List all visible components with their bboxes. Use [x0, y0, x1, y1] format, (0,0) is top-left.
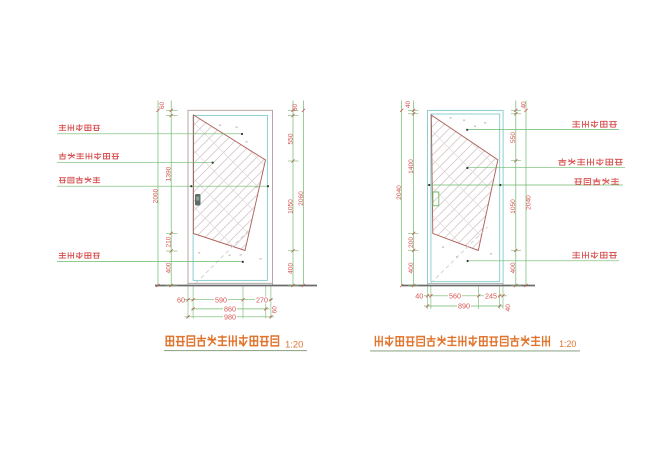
svg-text:890: 890 — [458, 302, 470, 311]
svg-text:200: 200 — [408, 237, 415, 248]
svg-text:560: 560 — [449, 291, 461, 300]
svg-text:60: 60 — [292, 104, 299, 112]
svg-text:1050: 1050 — [510, 199, 517, 214]
svg-text:1400: 1400 — [408, 159, 415, 174]
svg-text:590: 590 — [215, 295, 227, 304]
svg-text:550: 550 — [287, 133, 294, 144]
svg-text:270: 270 — [256, 295, 268, 304]
svg-text:60: 60 — [272, 306, 279, 314]
svg-text:1:20: 1:20 — [559, 339, 576, 349]
svg-text:1:20: 1:20 — [285, 340, 304, 351]
svg-text:40: 40 — [505, 304, 512, 312]
svg-text:400: 400 — [408, 262, 415, 273]
svg-text:245: 245 — [485, 291, 497, 300]
svg-text:60: 60 — [159, 102, 166, 110]
svg-text:1390: 1390 — [166, 166, 173, 181]
svg-text:2060: 2060 — [298, 191, 305, 206]
svg-text:400: 400 — [166, 262, 173, 273]
svg-text:60: 60 — [177, 295, 185, 304]
svg-text:2060: 2060 — [152, 188, 159, 203]
svg-text:40: 40 — [405, 101, 412, 109]
svg-text:40: 40 — [521, 101, 528, 109]
svg-text:980: 980 — [224, 312, 236, 321]
svg-text:400: 400 — [287, 263, 294, 274]
svg-text:2040: 2040 — [396, 185, 403, 200]
svg-text:1050: 1050 — [287, 199, 294, 214]
svg-text:210: 210 — [166, 236, 173, 247]
svg-text:400: 400 — [510, 262, 517, 273]
svg-text:40: 40 — [415, 291, 423, 300]
svg-text:2040: 2040 — [526, 195, 533, 210]
svg-text:550: 550 — [510, 132, 517, 143]
